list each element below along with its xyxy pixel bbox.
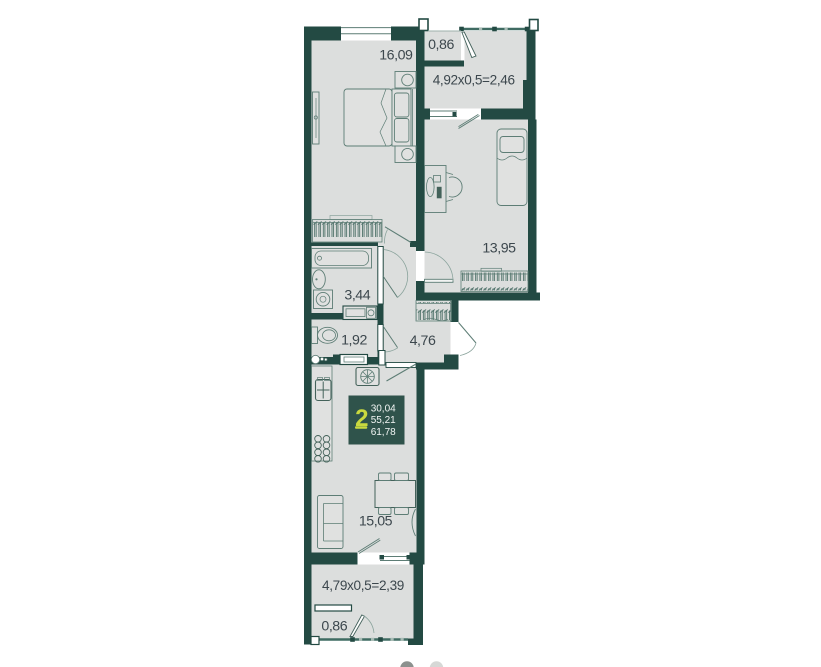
svg-text:4,79x0,5=2,39: 4,79x0,5=2,39 [322, 578, 404, 593]
svg-text:0,86: 0,86 [321, 619, 347, 635]
svg-text:13,95: 13,95 [482, 241, 516, 257]
svg-text:4,92x0,5=2,46: 4,92x0,5=2,46 [433, 72, 515, 87]
svg-text:30,04: 30,04 [371, 403, 396, 414]
svg-text:61,78: 61,78 [371, 427, 396, 438]
svg-text:1,92: 1,92 [341, 333, 367, 349]
svg-text:0,86: 0,86 [428, 37, 454, 53]
svg-text:4,76: 4,76 [410, 333, 436, 349]
svg-text:16,09: 16,09 [379, 48, 413, 64]
svg-text:55,21: 55,21 [371, 415, 396, 426]
svg-text:15,05: 15,05 [359, 514, 393, 530]
svg-text:3,44: 3,44 [344, 288, 370, 304]
